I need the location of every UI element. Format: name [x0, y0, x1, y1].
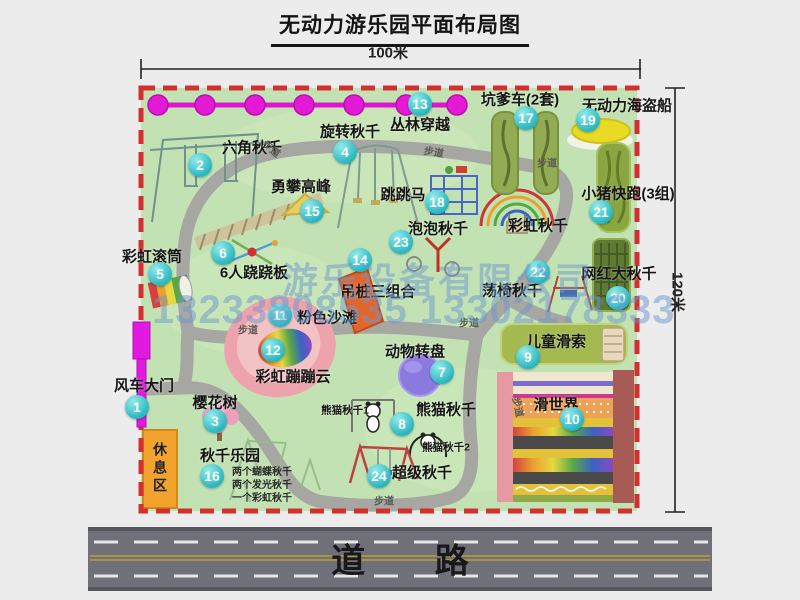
attraction-badge-14: 14	[348, 248, 372, 272]
walkway-label: 步道	[238, 322, 258, 337]
attraction-badge-18: 18	[425, 190, 449, 214]
attraction-label-12: 彩虹蹦蹦云	[255, 366, 330, 387]
attraction-label-20: 网红大秋千	[581, 263, 656, 284]
walkway-label: 步道	[537, 155, 557, 170]
attraction-badge-6: 6	[211, 241, 235, 265]
attraction-badge-17: 17	[514, 106, 538, 130]
rest-area-label: 休息区	[145, 434, 175, 504]
attraction-label-15: 勇攀高峰	[271, 176, 331, 197]
attraction-badge-4: 4	[333, 140, 357, 164]
attraction-badge-3: 3	[203, 409, 227, 433]
attraction-badge-23: 23	[389, 230, 413, 254]
attraction-badge-10: 10	[560, 407, 584, 431]
attraction-badge-9: 9	[516, 345, 540, 369]
attraction-badge-15: 15	[300, 199, 324, 223]
attraction-badge-19: 19	[576, 108, 600, 132]
road-label: 道 路	[301, 534, 498, 583]
attraction-badge-7: 7	[430, 360, 454, 384]
walkway-label: 步道	[374, 493, 394, 508]
attraction-badge-13: 13	[408, 92, 432, 116]
attraction-badge-5: 5	[148, 262, 172, 286]
attraction-label-24: 超级秋千	[392, 462, 452, 483]
park-layout-screenshot: 无动力游乐园平面布局图 100米 120米 道 路 休息区 风车大门 六角秋千 …	[0, 0, 800, 600]
walkway-label: 步道	[459, 315, 479, 330]
height-dimension-label: 120米	[668, 272, 689, 312]
attraction-badge-1: 1	[125, 395, 149, 419]
attraction-badge-20: 20	[606, 286, 630, 310]
attraction-badge-11: 11	[268, 303, 292, 327]
attraction-label-23: 泡泡秋千	[408, 218, 468, 239]
attraction-sublabel-8-1: 熊猫秋千1	[321, 403, 369, 418]
attraction-badge-22: 22	[526, 260, 550, 284]
slide-world-icon	[497, 370, 634, 503]
attraction-label-13: 丛林穿越	[390, 114, 450, 135]
rainbow-swing-label: 彩虹秋千	[508, 215, 568, 236]
attraction-badge-24: 24	[367, 464, 391, 488]
attraction-sublabel-8-2: 熊猫秋千2	[422, 440, 470, 455]
attraction-label-11: 粉色沙滩	[297, 307, 357, 328]
walkway-label: 步道	[423, 142, 445, 160]
attraction-label-1: 风车大门	[114, 375, 174, 396]
width-dimension-label: 100米	[368, 42, 408, 63]
attraction-label-4: 旋转秋千	[320, 121, 380, 142]
attraction-label-8: 熊猫秋千	[416, 399, 476, 420]
attraction-badge-12: 12	[261, 338, 285, 362]
attraction-label-18: 跳跳马	[380, 184, 425, 205]
attraction-badge-2: 2	[188, 153, 212, 177]
attraction-label-7: 动物转盘	[385, 341, 445, 362]
attraction-badge-8: 8	[390, 412, 414, 436]
attraction-label-14: 吊桩三组合	[340, 281, 415, 302]
attraction-badge-16: 16	[200, 464, 224, 488]
swing-park-detail-3: 一个彩虹秋千	[232, 489, 292, 504]
attraction-label-6: 6人跷跷板	[220, 262, 288, 283]
attraction-badge-21: 21	[589, 200, 613, 224]
